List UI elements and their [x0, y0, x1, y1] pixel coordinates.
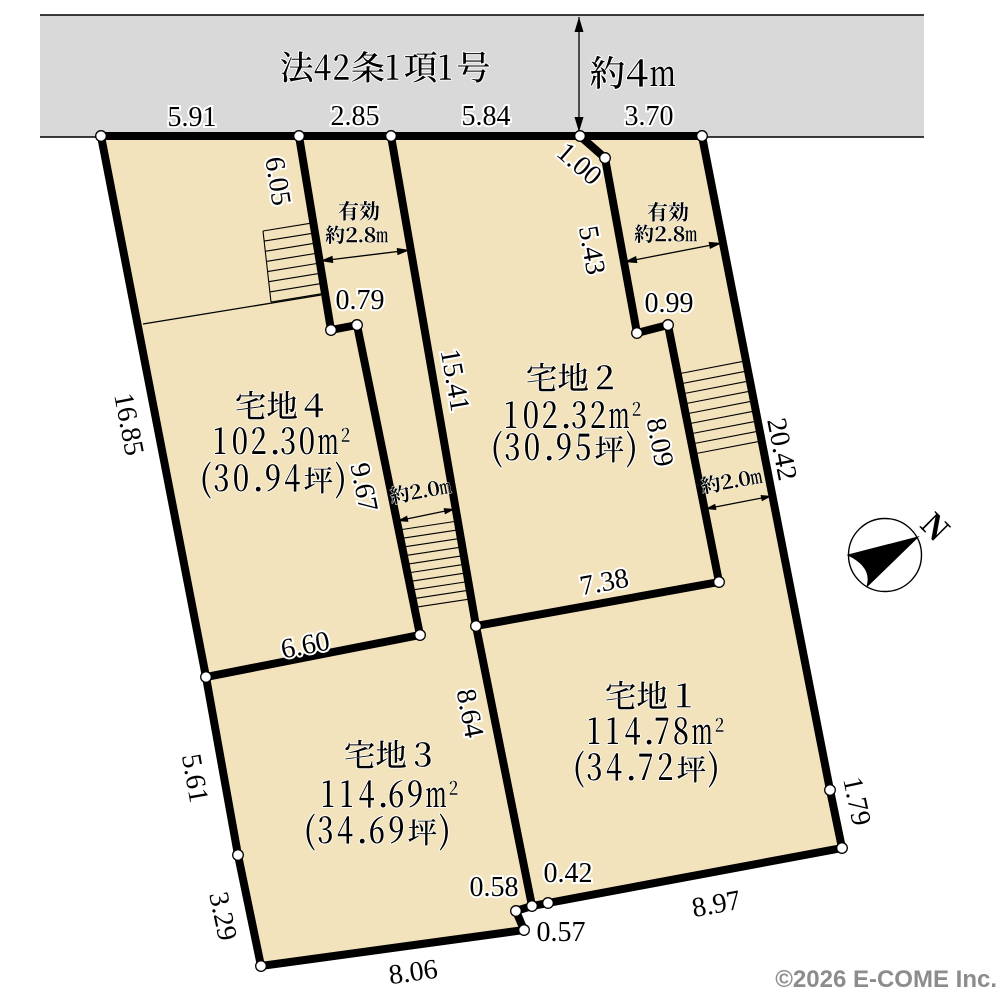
svg-text:2.85: 2.85 — [331, 101, 380, 132]
svg-text:©2026 E-COME Inc.: ©2026 E-COME Inc. — [775, 966, 997, 993]
svg-text:5.84: 5.84 — [462, 101, 511, 132]
svg-text:0.99: 0.99 — [645, 288, 694, 319]
svg-text:0.57: 0.57 — [537, 917, 586, 948]
svg-text:0.58: 0.58 — [470, 872, 519, 903]
svg-text:0.42: 0.42 — [544, 858, 593, 889]
svg-text:3.70: 3.70 — [625, 101, 674, 132]
svg-text:0.79: 0.79 — [336, 285, 385, 316]
svg-text:5.91: 5.91 — [168, 102, 217, 133]
